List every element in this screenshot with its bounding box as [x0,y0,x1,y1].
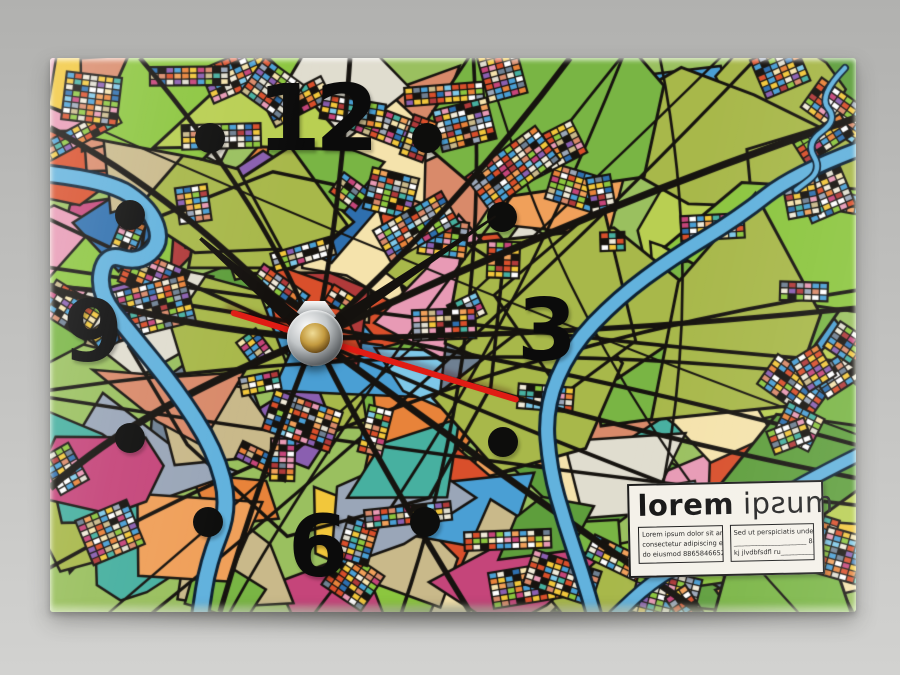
hour-marker-dot-5-oclock [410,507,440,537]
clock-shadow [36,606,870,632]
numeral-6: 6 [288,504,348,590]
hour-marker-dot-10-oclock [115,200,145,230]
numeral-12: 12 [257,73,373,165]
clock-hub [287,310,343,366]
hour-marker-dot-1-oclock [412,123,442,153]
photo-backdrop: 12 3 6 9 loremipƨum Lorem ipsum dolor si… [0,0,900,675]
hour-marker-dot-11-oclock [195,123,225,153]
legend-left-box: Lorem ipsum dolor sit amet, consectetur … [638,526,723,564]
legend-right-box: Sed ut perspiciatis unde omnis _________… [729,524,814,562]
numeral-3: 3 [517,288,577,374]
hub-brass-cap [300,323,330,353]
legend-title-light: ipƨum [743,485,834,521]
map-clock: 12 3 6 9 loremipƨum Lorem ipsum dolor si… [50,58,856,612]
legend-right-line3: kj jlvdbfsdfl ru___________ . [734,547,811,558]
hour-marker-dot-4-oclock [488,427,518,457]
numeral-9: 9 [63,289,123,375]
map-legend-card: loremipƨum Lorem ipsum dolor sit amet, c… [627,480,825,578]
legend-title: loremipƨum [637,487,814,521]
legend-boxes: Lorem ipsum dolor sit amet, consectetur … [638,524,815,564]
hour-marker-dot-8-oclock [115,423,145,453]
hour-marker-dot-7-oclock [193,507,223,537]
hour-marker-dot-2-oclock [487,202,517,232]
legend-title-bold: lorem [637,487,734,523]
legend-left-line3: do eiusmod 88658466521 // [642,549,719,560]
